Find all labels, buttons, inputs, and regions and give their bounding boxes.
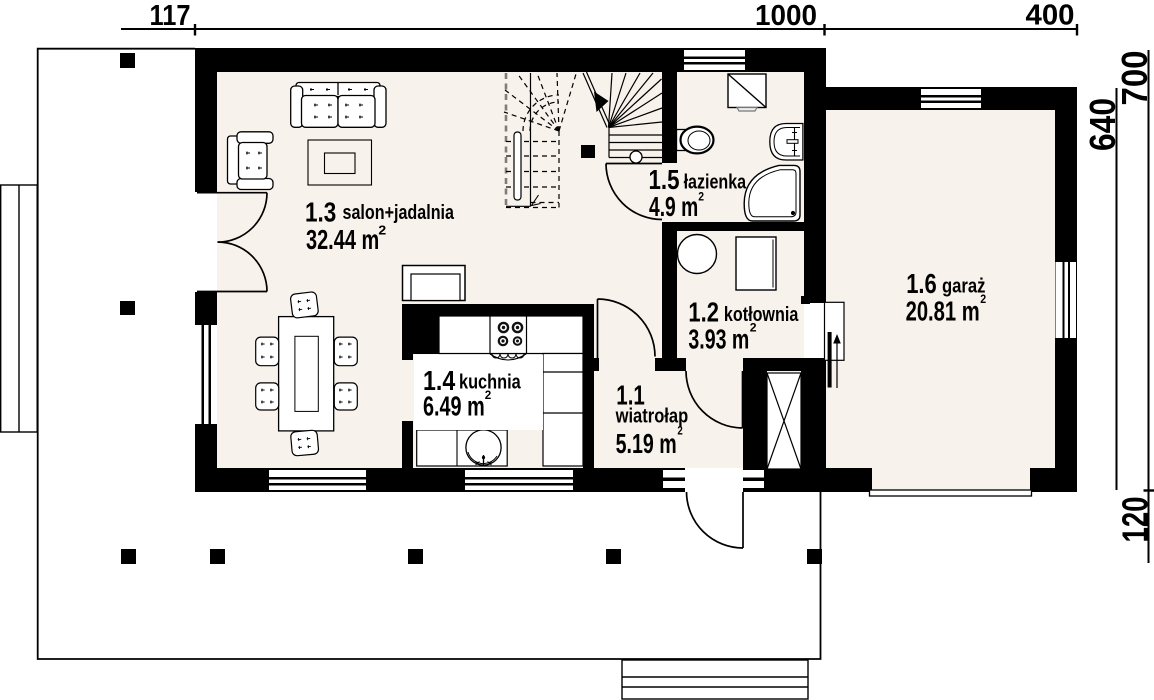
- svg-text:1000: 1000: [755, 0, 817, 32]
- svg-text:120: 120: [1115, 497, 1154, 543]
- svg-text:2: 2: [698, 189, 704, 203]
- svg-text:400: 400: [1026, 0, 1075, 32]
- svg-text:32.44 m: 32.44 m: [306, 224, 379, 255]
- svg-text:117: 117: [150, 0, 191, 32]
- svg-text:3.93 m: 3.93 m: [688, 324, 749, 355]
- svg-text:640: 640: [1082, 98, 1123, 151]
- svg-text:4.9 m: 4.9 m: [649, 191, 698, 222]
- svg-text:1.3: 1.3: [305, 197, 336, 228]
- svg-text:2: 2: [677, 424, 683, 438]
- svg-text:2: 2: [485, 388, 492, 402]
- svg-text:garaż: garaż: [942, 276, 986, 298]
- svg-text:6.49 m: 6.49 m: [423, 391, 485, 422]
- svg-text:20.81 m: 20.81 m: [906, 295, 980, 326]
- svg-text:5.19 m: 5.19 m: [616, 428, 677, 459]
- svg-text:2: 2: [980, 292, 986, 306]
- svg-text:salon+jadalnia: salon+jadalnia: [343, 202, 455, 224]
- svg-text:2: 2: [750, 321, 757, 335]
- svg-text:700: 700: [1114, 51, 1154, 106]
- svg-text:2: 2: [378, 223, 386, 238]
